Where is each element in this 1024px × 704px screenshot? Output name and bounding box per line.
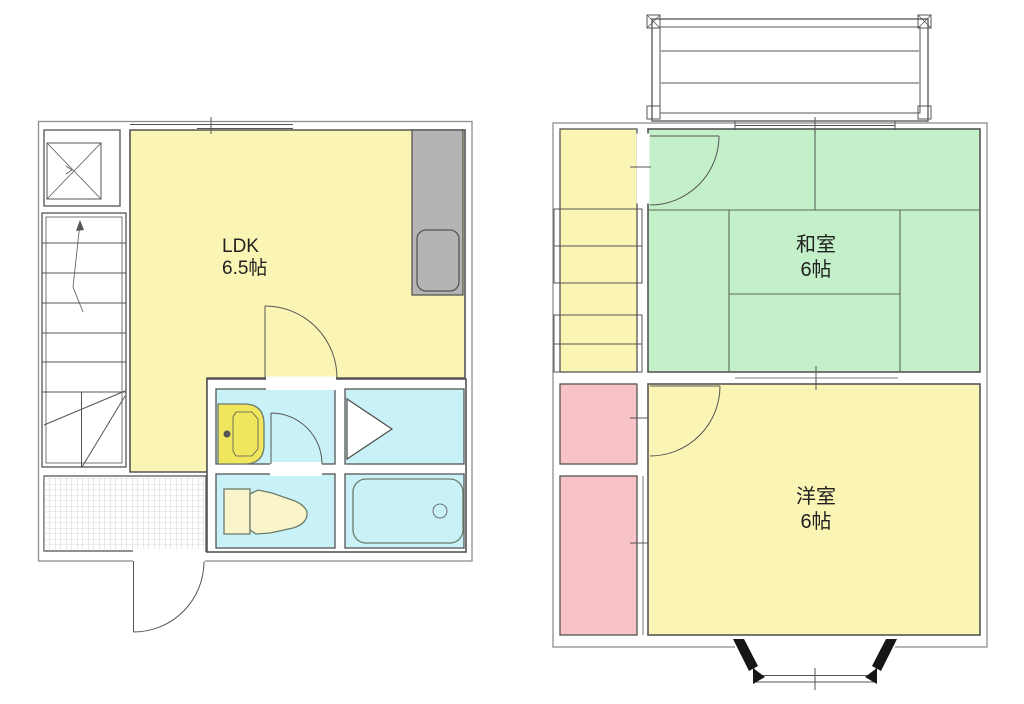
yoshitsu-label: 洋室	[796, 485, 836, 508]
skylight-box-icon	[44, 130, 120, 206]
staircase-icon	[42, 213, 126, 467]
bay-window-icon	[733, 637, 897, 691]
room-yoshitsu	[648, 384, 980, 635]
ldk-size-label: 6.5帖	[222, 257, 267, 279]
balcony-icon	[647, 15, 931, 121]
entrance-door-icon	[133, 549, 205, 632]
room-hall-2f	[560, 129, 637, 372]
kitchen-counter	[412, 130, 463, 295]
washbasin-icon	[218, 404, 264, 464]
first-floor-plan: LDK 6.5帖	[39, 117, 473, 632]
closet-lower	[560, 476, 637, 635]
floor-plan-drawing: LDK 6.5帖	[0, 0, 1024, 704]
entrance-tile-area	[44, 476, 206, 551]
room-bath	[345, 474, 464, 548]
washitsu-label: 和室	[796, 233, 836, 256]
closet-upper	[560, 384, 637, 464]
second-floor-plan: 和室 6帖 洋室 6帖	[553, 15, 987, 690]
yoshitsu-size-label: 6帖	[800, 510, 831, 533]
ldk-label: LDK	[222, 236, 259, 257]
kitchen-sink-icon	[417, 230, 459, 291]
floor-plan-page: LDK 6.5帖	[0, 0, 1024, 704]
washitsu-size-label: 6帖	[800, 258, 831, 281]
